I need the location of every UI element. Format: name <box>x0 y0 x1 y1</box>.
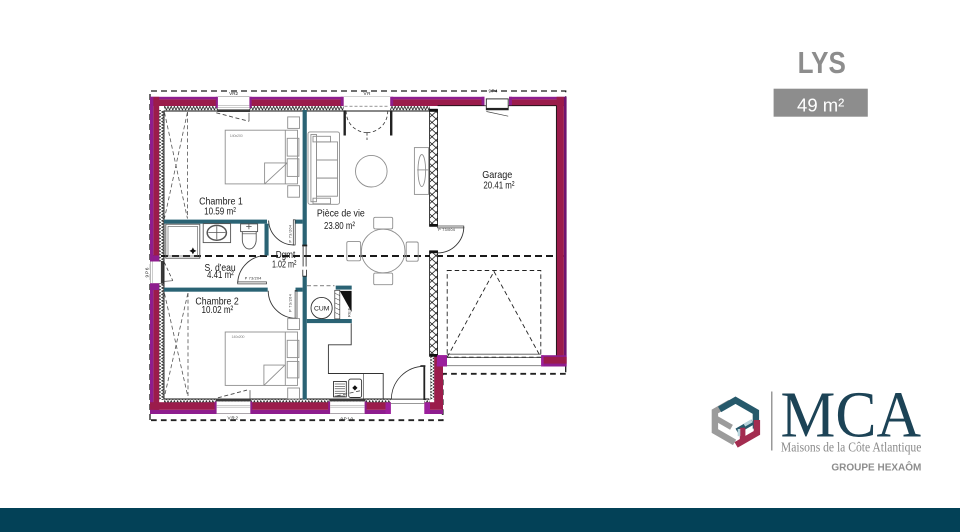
svg-text:P 73/204: P 73/204 <box>245 276 261 280</box>
svg-text:20.41 m²: 20.41 m² <box>483 180 515 191</box>
svg-text:P 73/004: P 73/004 <box>438 228 455 232</box>
svg-text:10.59 m²: 10.59 m² <box>204 206 236 217</box>
svg-text:VR2: VR2 <box>229 91 238 96</box>
svg-text:140x200: 140x200 <box>230 134 243 138</box>
svg-text:140x200: 140x200 <box>232 335 245 339</box>
svg-text:P 73/204: P 73/204 <box>289 294 293 312</box>
svg-text:23.80 m²: 23.80 m² <box>324 221 355 232</box>
svg-text:Garage: Garage <box>482 170 512 181</box>
svg-text:49 m²: 49 m² <box>797 94 844 115</box>
svg-text:9P10: 9P10 <box>341 416 354 421</box>
svg-text:Pièce de vie: Pièce de vie <box>317 209 365 220</box>
svg-text:CUM: CUM <box>314 306 329 313</box>
svg-text:LYS: LYS <box>798 45 846 80</box>
svg-text:GROUPE HEXAÔM: GROUPE HEXAÔM <box>831 462 921 474</box>
svg-text:P 73/204: P 73/204 <box>289 225 293 243</box>
svg-text:9P4: 9P4 <box>489 89 498 94</box>
svg-text:4.41 m²: 4.41 m² <box>207 270 234 281</box>
svg-text:VR2: VR2 <box>228 416 239 421</box>
svg-text:1.02 m²: 1.02 m² <box>272 259 297 270</box>
svg-text:9P6: 9P6 <box>145 267 150 277</box>
svg-text:10.02 m²: 10.02 m² <box>202 305 234 316</box>
svg-text:Maisons de la Côte Atlantique: Maisons de la Côte Atlantique <box>781 440 922 455</box>
svg-text:VR: VR <box>364 91 372 96</box>
svg-text:REF: REF <box>347 307 351 317</box>
